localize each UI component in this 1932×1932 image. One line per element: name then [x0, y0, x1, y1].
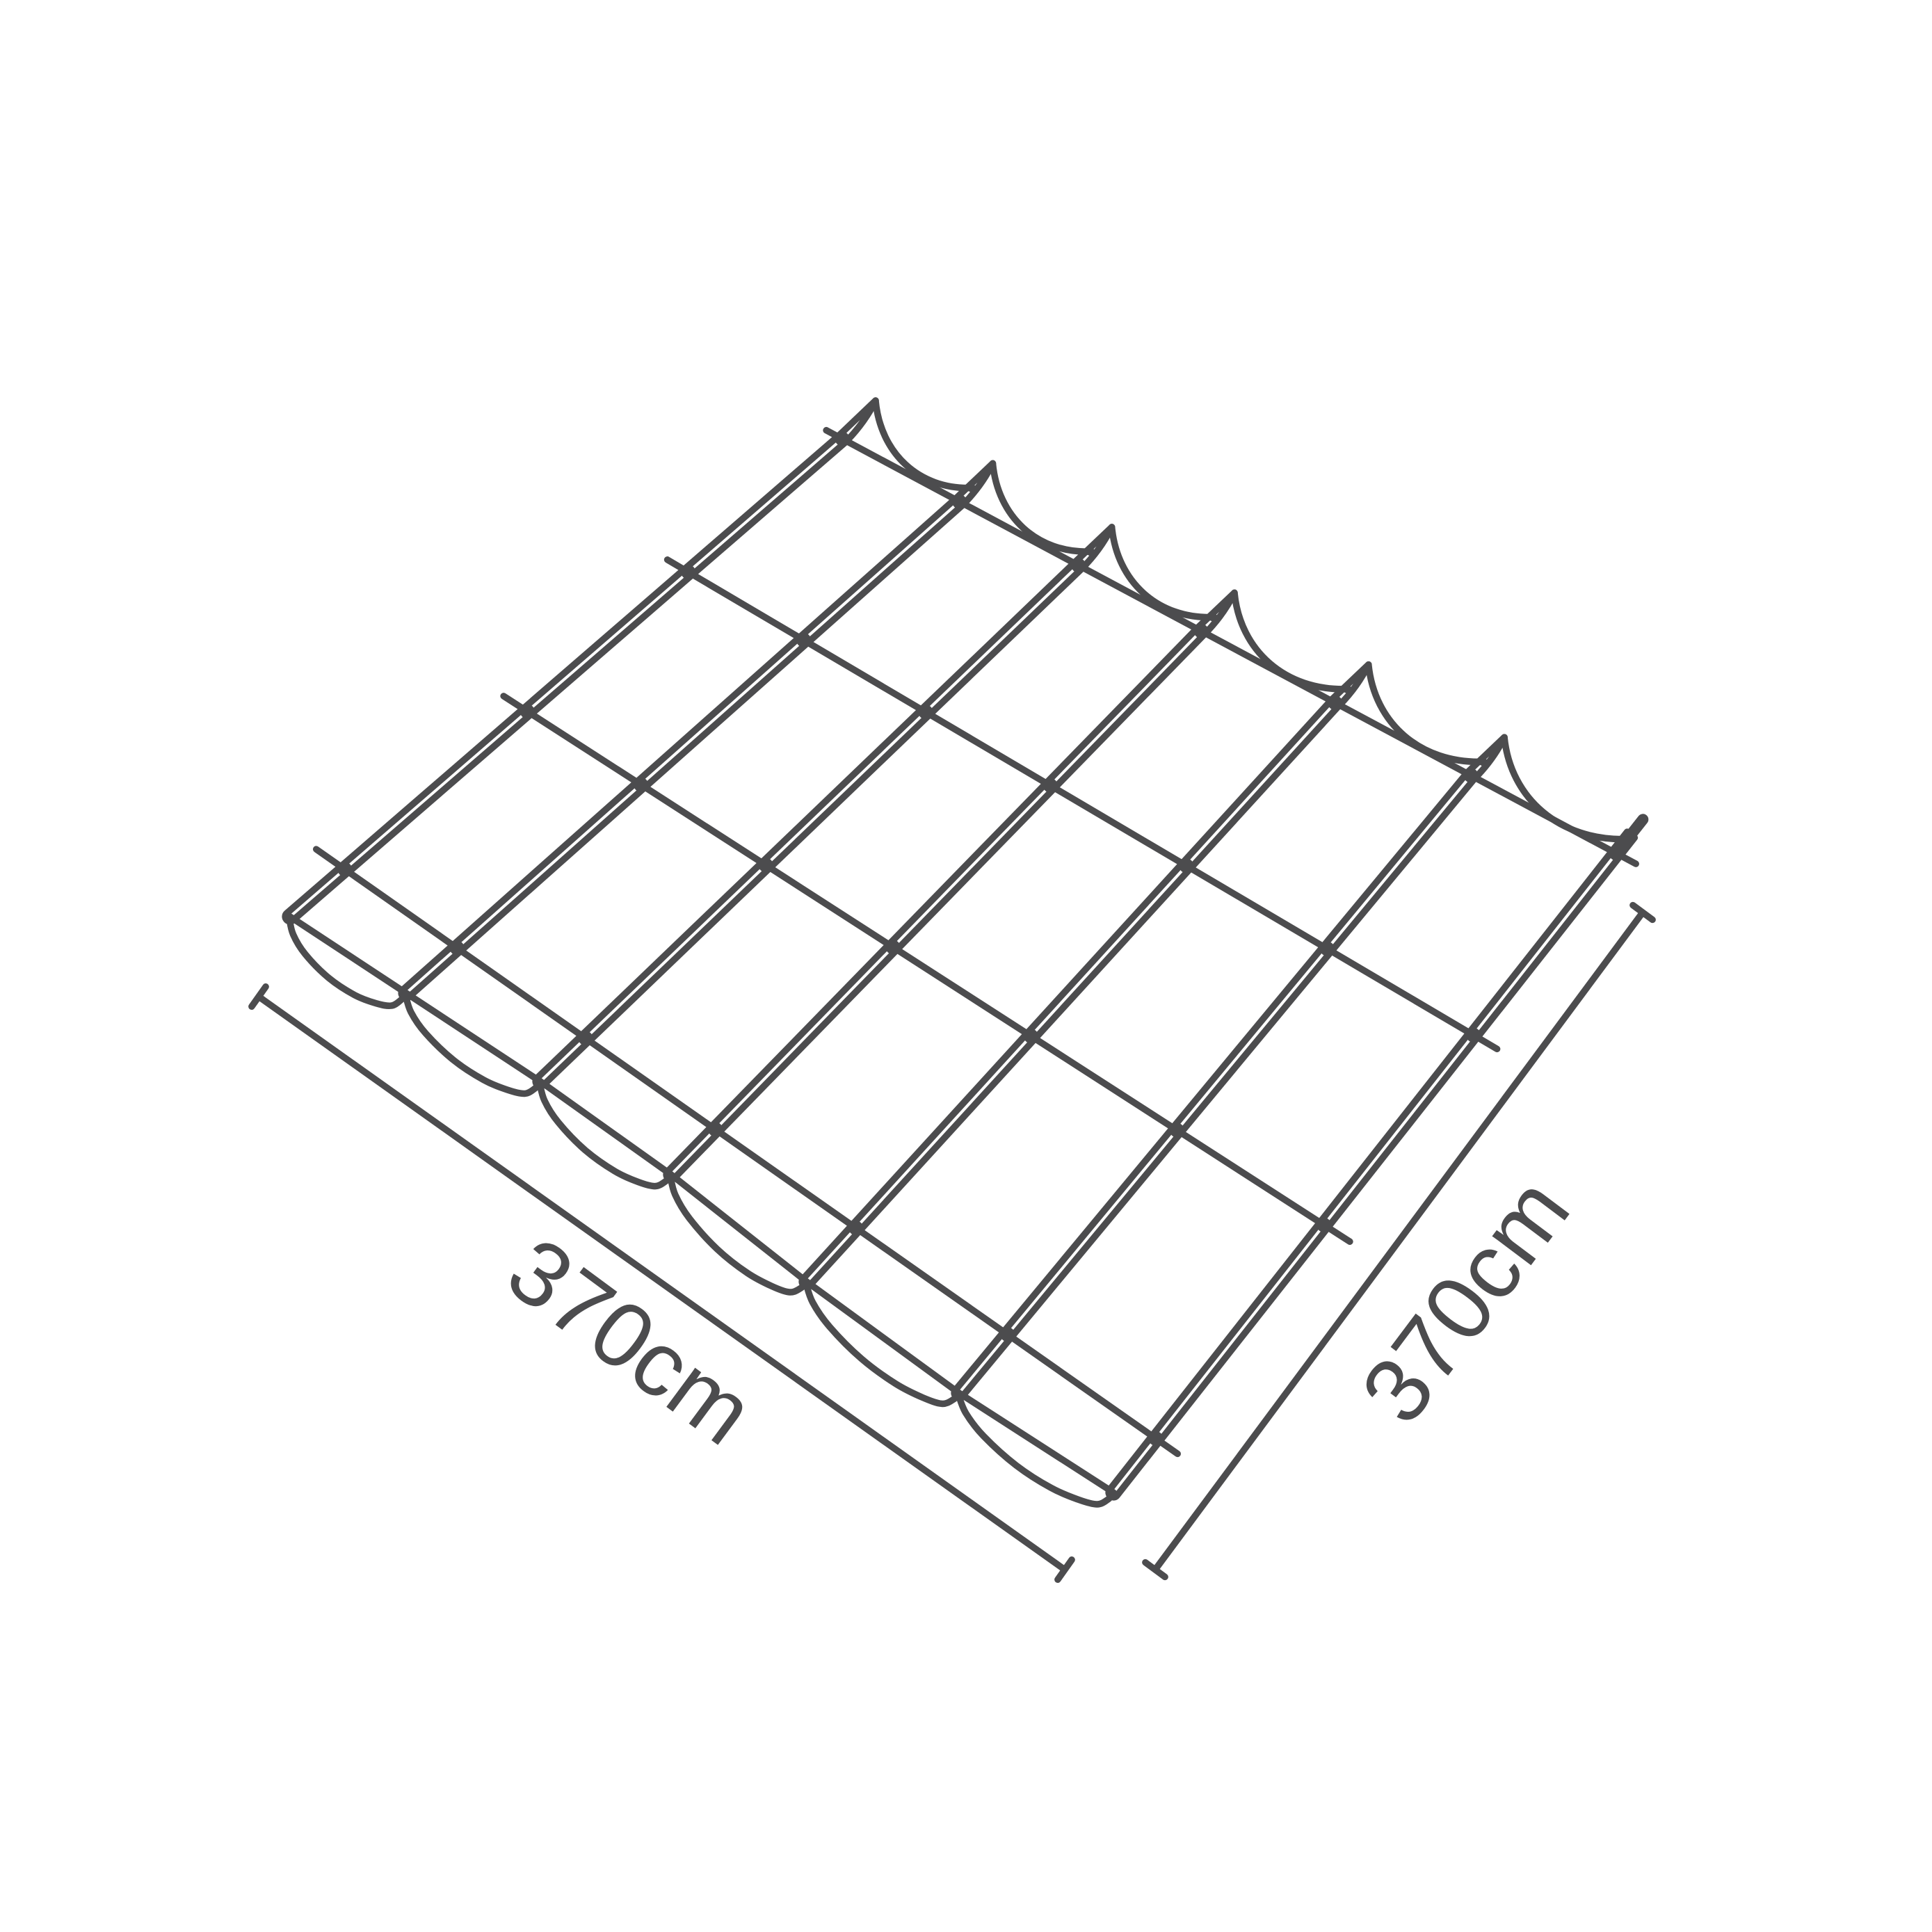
svg-text:370cm: 370cm: [1342, 1159, 1588, 1441]
svg-text:370cm: 370cm: [490, 1218, 772, 1465]
